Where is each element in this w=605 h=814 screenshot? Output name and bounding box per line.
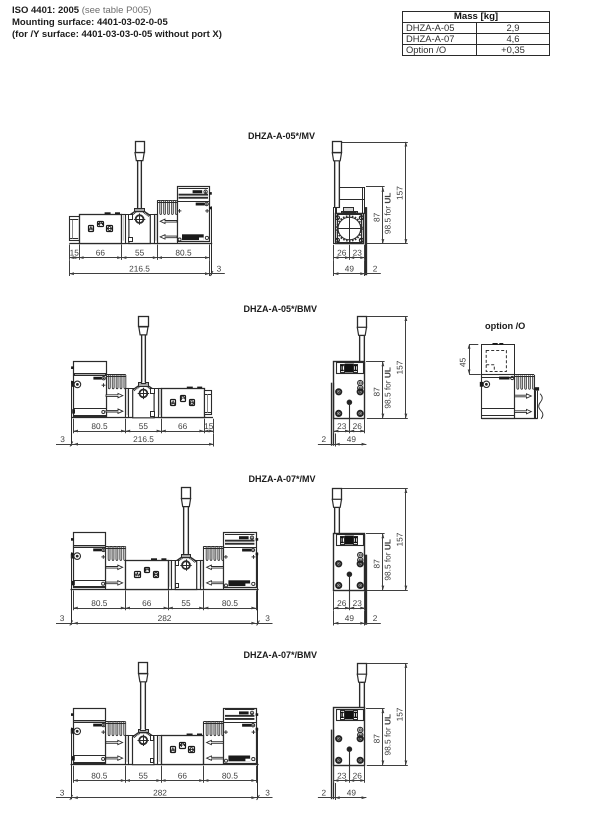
svg-text:3: 3 — [265, 613, 270, 623]
svg-text:66: 66 — [178, 770, 188, 780]
svg-text:87: 87 — [372, 387, 382, 397]
svg-text:26: 26 — [353, 770, 363, 780]
svg-text:157: 157 — [395, 360, 405, 374]
svg-text:66: 66 — [142, 598, 152, 608]
svg-text:80.5: 80.5 — [91, 421, 108, 431]
svg-text:49: 49 — [347, 788, 357, 798]
svg-text:3: 3 — [60, 434, 65, 444]
svg-text:23: 23 — [353, 247, 363, 257]
svg-text:55: 55 — [181, 598, 191, 608]
svg-text:80.5: 80.5 — [222, 770, 239, 780]
svg-text:80.5: 80.5 — [222, 598, 239, 608]
svg-text:157: 157 — [395, 532, 405, 546]
svg-text:80.5: 80.5 — [175, 247, 192, 257]
svg-text:80.5: 80.5 — [91, 598, 108, 608]
svg-text:23: 23 — [337, 421, 347, 431]
svg-text:157: 157 — [395, 186, 405, 200]
svg-text:66: 66 — [178, 421, 188, 431]
svg-text:55: 55 — [139, 421, 149, 431]
svg-text:23: 23 — [353, 598, 363, 608]
svg-text:55: 55 — [135, 247, 145, 257]
svg-text:15: 15 — [204, 421, 214, 431]
svg-text:2: 2 — [321, 434, 326, 444]
svg-text:15: 15 — [70, 247, 80, 257]
svg-text:98.5 for UL: 98.5 for UL — [383, 193, 393, 235]
svg-text:55: 55 — [139, 770, 149, 780]
svg-text:49: 49 — [345, 264, 355, 274]
svg-text:3: 3 — [217, 264, 222, 274]
svg-text:157: 157 — [395, 707, 405, 721]
svg-text:87: 87 — [372, 734, 382, 744]
svg-text:216.5: 216.5 — [129, 264, 150, 274]
svg-text:87: 87 — [372, 559, 382, 569]
svg-text:26: 26 — [353, 421, 363, 431]
svg-text:26: 26 — [337, 598, 347, 608]
svg-text:2: 2 — [321, 788, 326, 798]
svg-text:3: 3 — [60, 613, 65, 623]
svg-text:3: 3 — [265, 788, 270, 798]
svg-text:98.5 for UL: 98.5 for UL — [383, 539, 393, 581]
svg-text:80.5: 80.5 — [91, 770, 108, 780]
svg-text:49: 49 — [345, 613, 355, 623]
svg-text:282: 282 — [153, 788, 167, 798]
svg-text:23: 23 — [337, 770, 347, 780]
svg-text:26: 26 — [337, 247, 347, 257]
svg-text:49: 49 — [347, 434, 357, 444]
svg-text:87: 87 — [372, 212, 382, 222]
svg-text:3: 3 — [60, 788, 65, 798]
svg-text:98.5 for UL: 98.5 for UL — [383, 367, 393, 409]
svg-text:282: 282 — [158, 613, 172, 623]
svg-text:66: 66 — [96, 247, 106, 257]
svg-text:45: 45 — [458, 357, 468, 367]
svg-text:216.5: 216.5 — [133, 434, 154, 444]
svg-text:2: 2 — [373, 613, 378, 623]
svg-text:98.5 for UL: 98.5 for UL — [383, 714, 393, 756]
svg-text:2: 2 — [373, 264, 378, 274]
